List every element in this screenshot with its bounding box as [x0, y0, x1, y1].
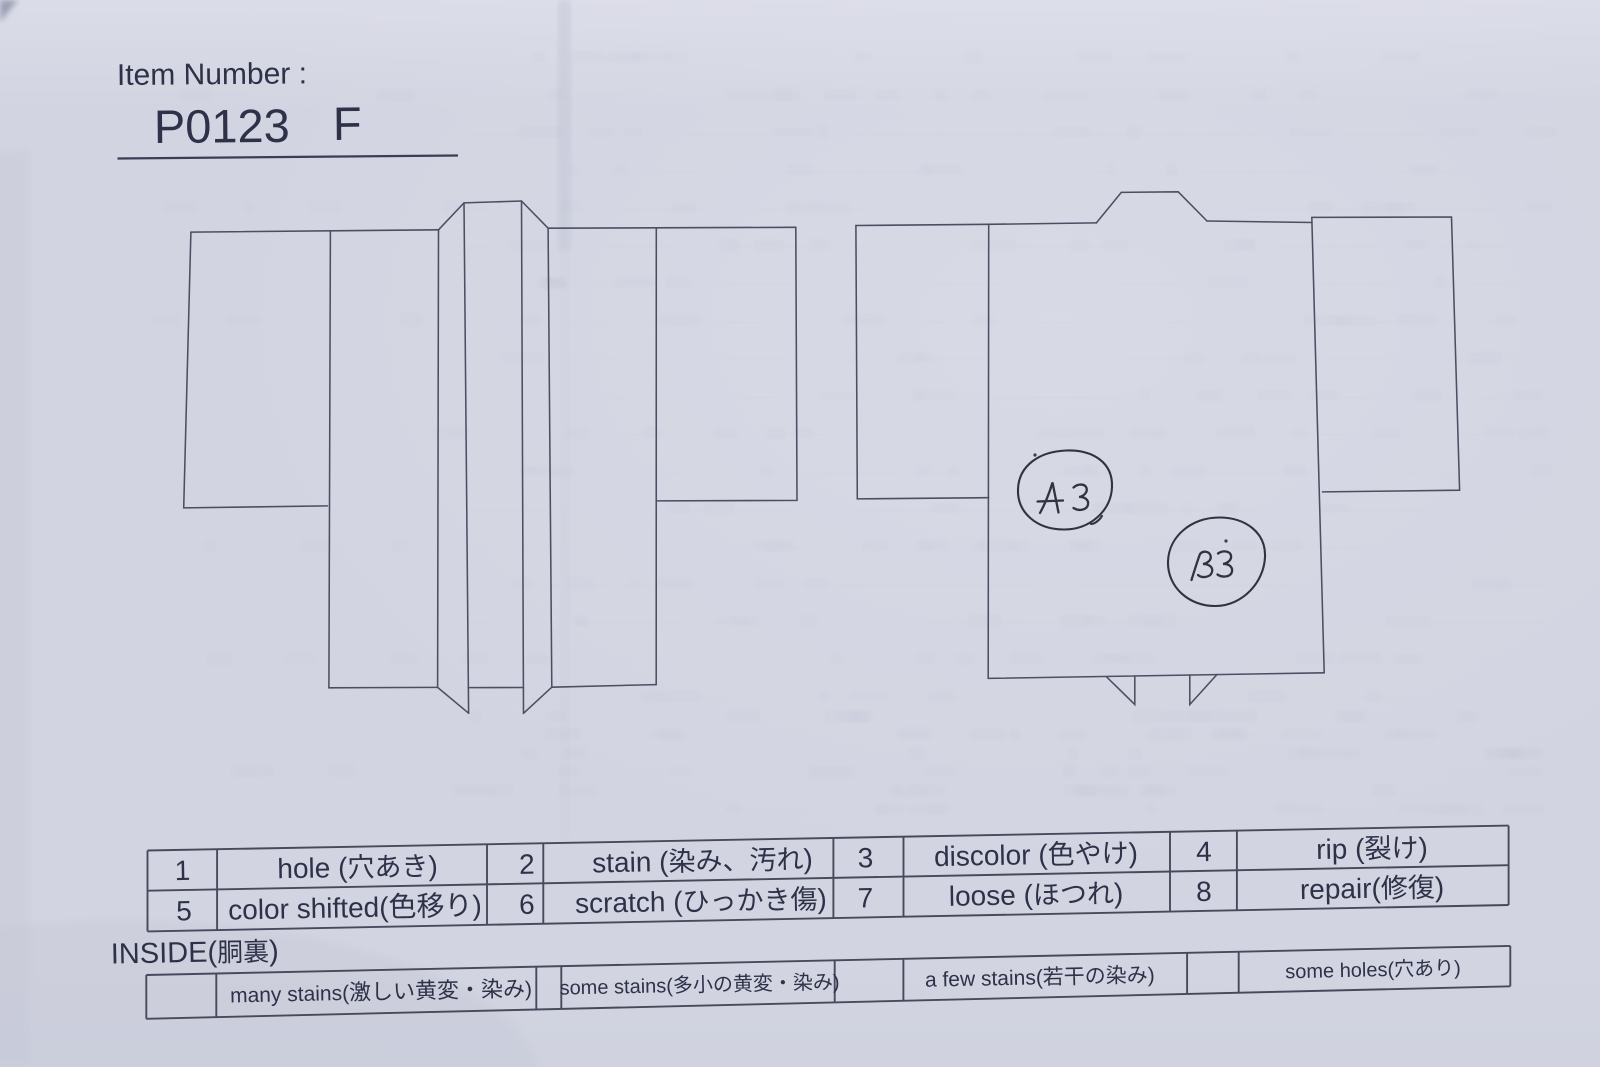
svg-text:color shifted(: color shifted( [228, 892, 390, 926]
svg-text:F: F [333, 97, 362, 150]
svg-text:): ) [1147, 964, 1155, 987]
svg-text:1: 1 [174, 855, 190, 886]
svg-text:rip (: rip ( [1316, 833, 1365, 865]
svg-text:): ) [472, 890, 482, 921]
svg-text:): ) [1418, 832, 1428, 863]
svg-text:): ) [1128, 837, 1138, 868]
svg-text:): ) [833, 972, 840, 994]
svg-text:some stains(: some stains( [559, 975, 673, 999]
svg-text:): ) [1114, 878, 1124, 909]
svg-text:hole (: hole ( [277, 852, 348, 884]
svg-text:7: 7 [857, 882, 873, 913]
svg-text:): ) [269, 935, 279, 967]
svg-text:repair(: repair( [1300, 873, 1382, 906]
svg-text:many stains(: many stains( [230, 982, 350, 1008]
svg-text:discolor (: discolor ( [934, 839, 1049, 872]
svg-text:a few stains(: a few stains( [925, 966, 1043, 992]
svg-text:2: 2 [519, 849, 535, 880]
svg-text:): ) [428, 850, 438, 881]
svg-text:): ) [803, 843, 813, 874]
svg-text:3: 3 [857, 842, 873, 873]
svg-text:): ) [1435, 871, 1445, 902]
svg-text:scratch (: scratch ( [575, 886, 684, 919]
svg-text:stain (: stain ( [592, 846, 669, 878]
svg-text:8: 8 [1196, 876, 1212, 907]
svg-text:): ) [817, 883, 827, 914]
svg-text:6: 6 [519, 889, 535, 920]
svg-text:): ) [525, 978, 533, 1001]
svg-text:Item Number :: Item Number : [117, 57, 307, 92]
svg-text:5: 5 [176, 895, 192, 926]
svg-text:some holes(: some holes( [1285, 959, 1395, 983]
svg-text:INSIDE(: INSIDE( [111, 936, 218, 970]
svg-text:P0123: P0123 [154, 99, 290, 153]
svg-text:): ) [1454, 957, 1461, 979]
svg-text:loose (: loose ( [949, 879, 1034, 912]
svg-text:4: 4 [1196, 836, 1212, 867]
